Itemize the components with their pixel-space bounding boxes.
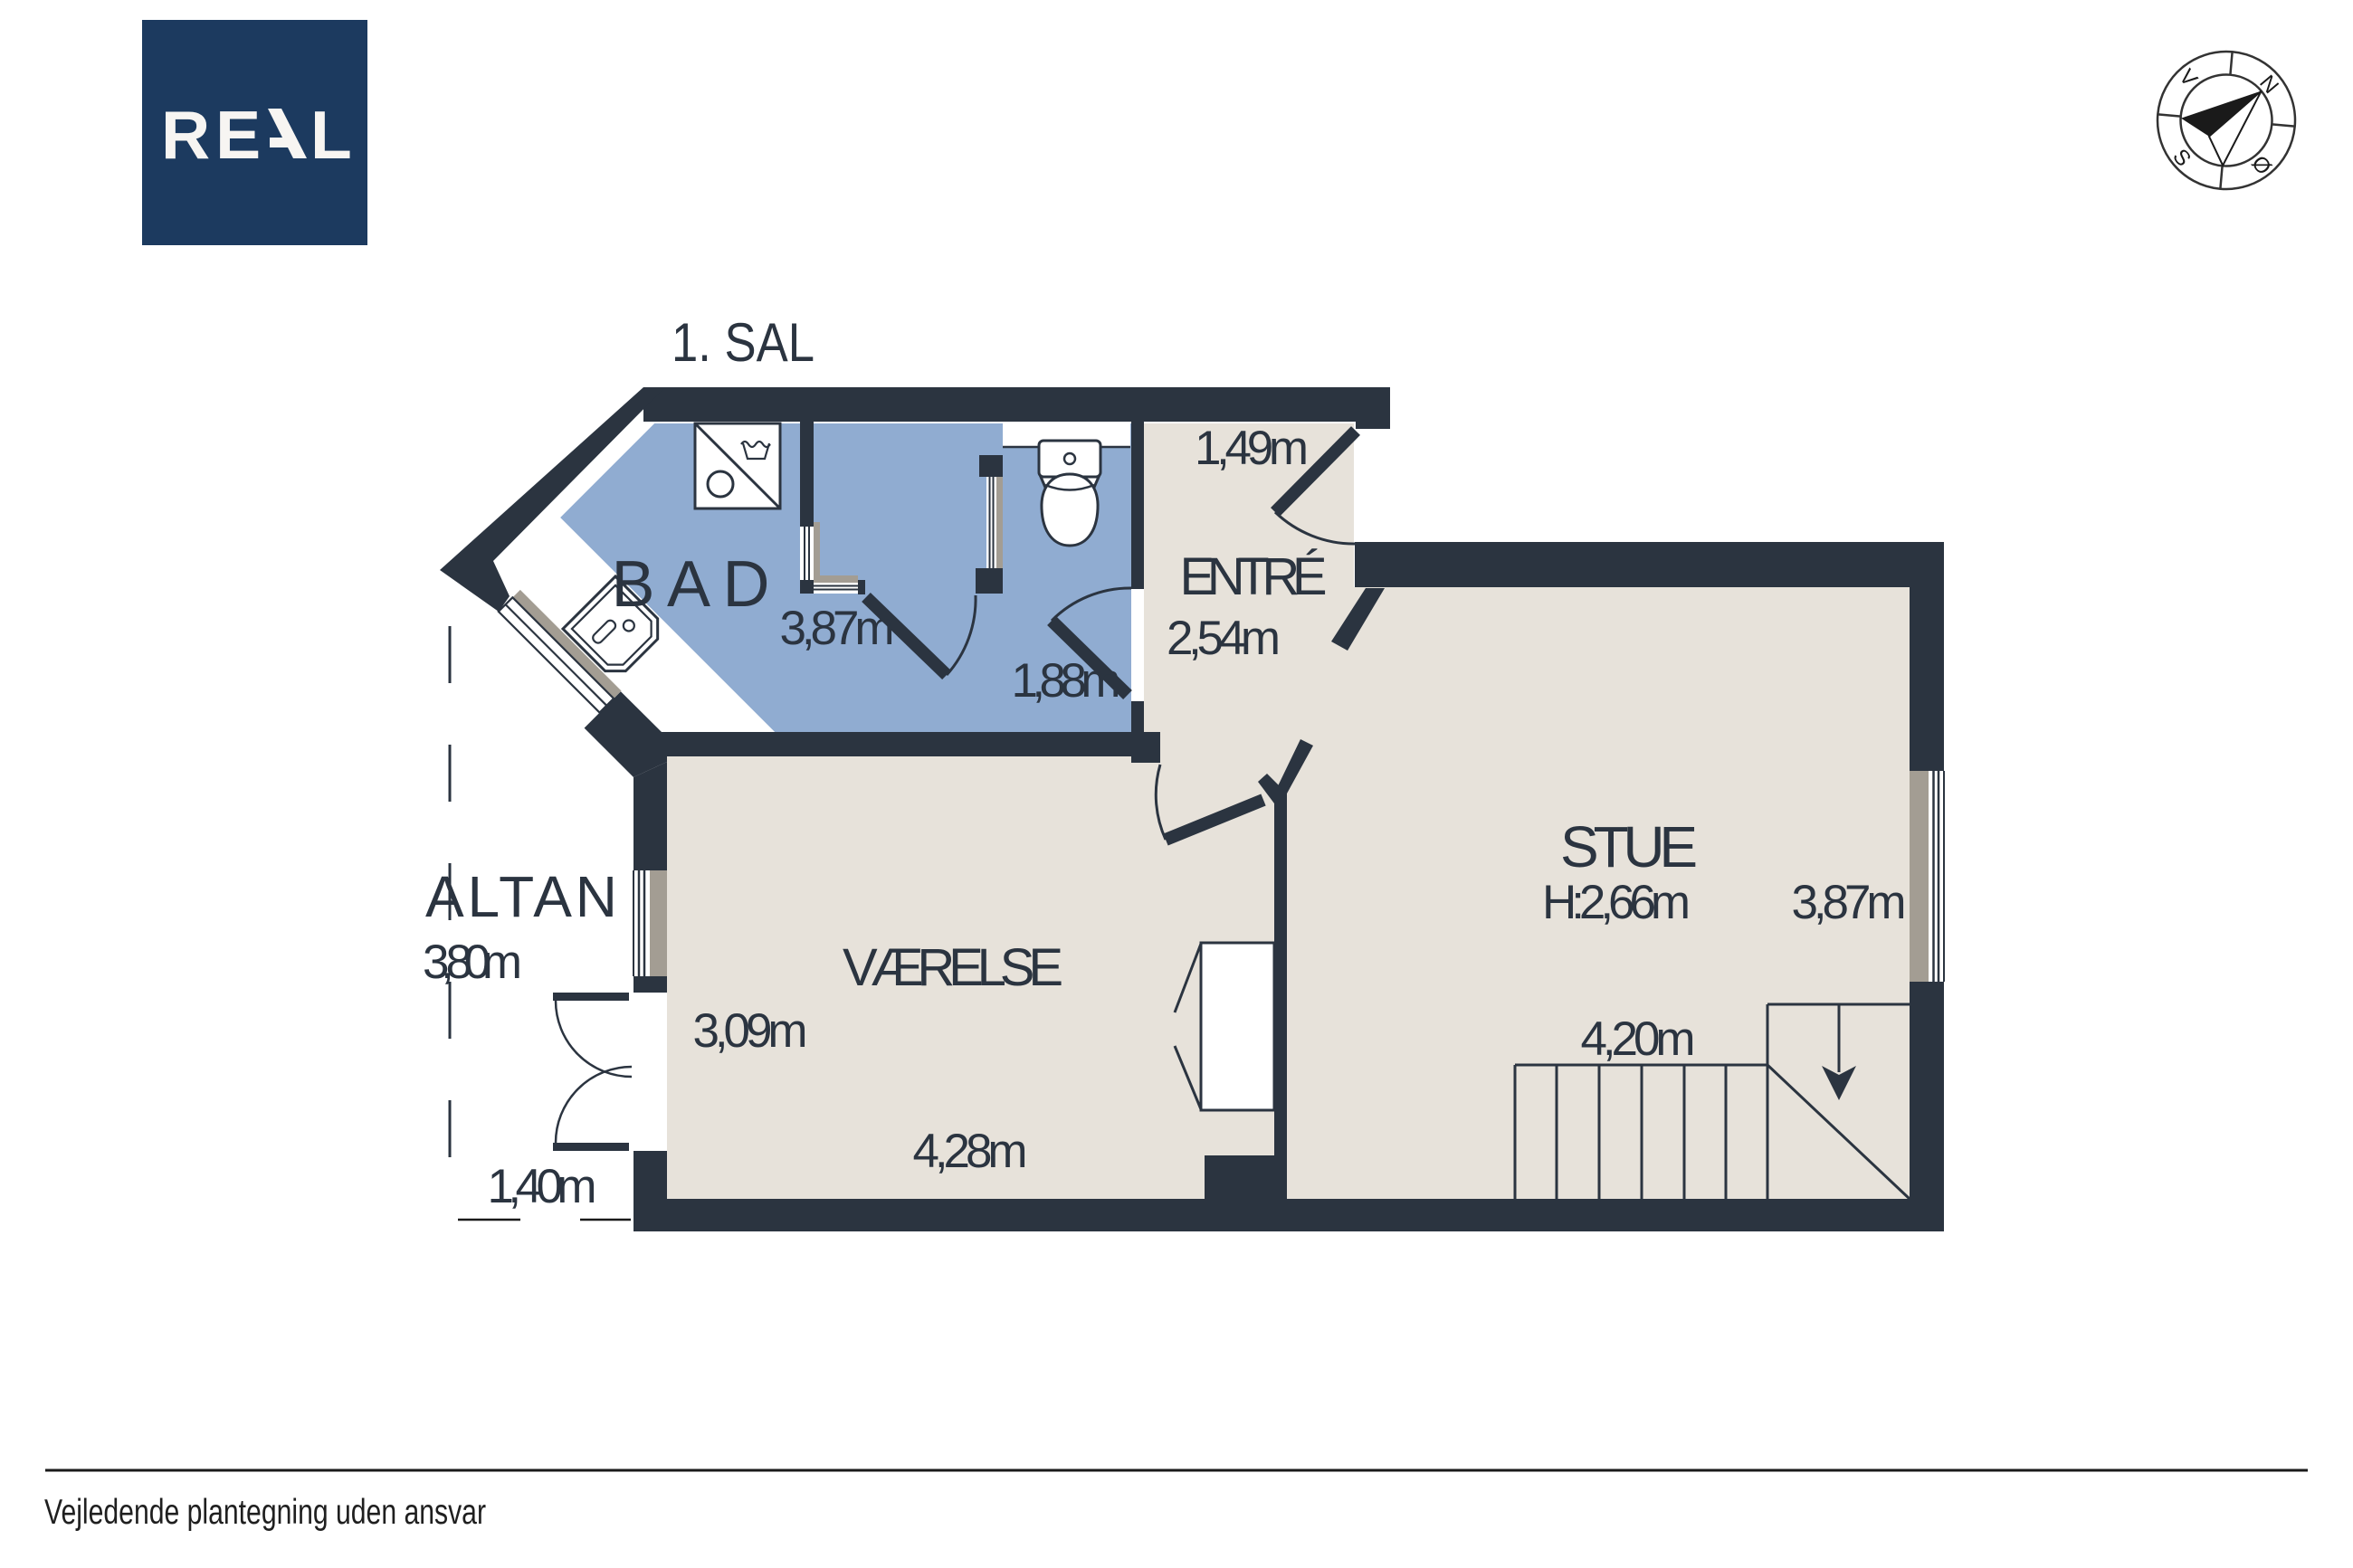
svg-text:RE: RE [161, 97, 266, 173]
svg-text:BAD: BAD [612, 548, 770, 621]
svg-text:1,88m: 1,88m [1012, 654, 1121, 708]
svg-text:3,87m: 3,87m [780, 602, 895, 655]
svg-text:ALTAN: ALTAN [425, 864, 617, 929]
svg-text:3,09m: 3,09m [693, 1004, 808, 1058]
svg-text:STUE: STUE [1560, 814, 1698, 879]
svg-text:ENTRÉ: ENTRÉ [1180, 547, 1328, 606]
svg-text:3,87m: 3,87m [1792, 876, 1907, 929]
svg-text:1. SAL: 1. SAL [672, 312, 814, 373]
svg-text:2,54m: 2,54m [1167, 612, 1281, 665]
svg-text:1,40m: 1,40m [488, 1160, 597, 1213]
svg-text:L: L [310, 97, 352, 173]
svg-text:3,80m: 3,80m [423, 936, 522, 989]
svg-text:VÆRELSE: VÆRELSE [843, 938, 1063, 997]
svg-text:Vejledende plantegning uden an: Vejledende plantegning uden ansvar [44, 1493, 486, 1532]
svg-text:H:2,66m: H:2,66m [1542, 876, 1691, 929]
svg-text:4,20m: 4,20m [1581, 1012, 1696, 1066]
svg-text:4,28m: 4,28m [913, 1125, 1028, 1178]
svg-text:1,49m: 1,49m [1195, 422, 1309, 475]
